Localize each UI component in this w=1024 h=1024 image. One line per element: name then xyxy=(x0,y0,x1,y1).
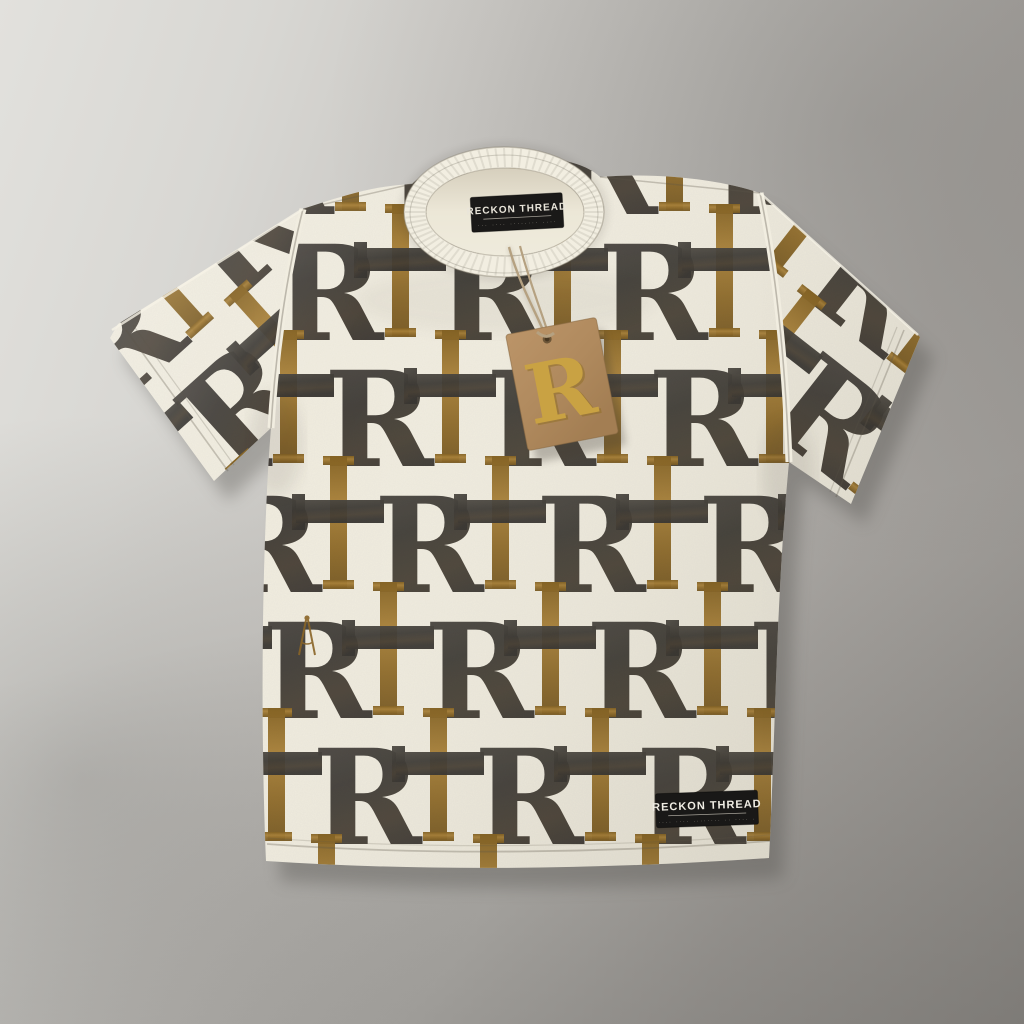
monogram-glyph xyxy=(0,348,94,602)
monogram-glyph xyxy=(0,582,49,750)
monogram-glyph xyxy=(0,746,218,1000)
monogram-glyph xyxy=(0,0,123,120)
monogram-glyph xyxy=(0,547,63,798)
collar-rib-line xyxy=(504,148,505,167)
monogram-glyph xyxy=(917,0,1024,226)
monogram-glyph xyxy=(0,0,212,157)
monogram-glyph xyxy=(926,47,1024,301)
monogram-glyph xyxy=(0,646,190,897)
hem-label: RECKON THREAD ···· ···· ········ ·· ····… xyxy=(652,790,763,828)
monogram-glyph xyxy=(0,517,95,771)
monogram-glyph xyxy=(815,855,1024,1024)
monogram-glyph xyxy=(0,204,61,372)
monogram-glyph xyxy=(611,1015,867,1024)
monogram-glyph xyxy=(84,974,340,1024)
monogram-glyph xyxy=(562,0,818,121)
monogram-glyph xyxy=(578,0,771,120)
monogram-glyph xyxy=(330,0,586,87)
monogram-glyph xyxy=(853,725,1024,976)
monogram-glyph xyxy=(492,960,685,1024)
monogram-glyph xyxy=(0,777,152,1024)
monogram-glyph xyxy=(809,661,1024,915)
monogram-glyph xyxy=(766,834,959,1002)
monogram-glyph xyxy=(927,216,1024,470)
monogram-glyph xyxy=(928,384,1024,638)
neck-label: RECKON THREAD ··· ···· ········ ···· xyxy=(466,192,568,232)
monogram-glyph xyxy=(0,907,114,1024)
monogram-glyph xyxy=(805,0,1024,241)
monogram-glyph xyxy=(990,582,1024,750)
monogram-glyph xyxy=(254,0,447,120)
monogram-glyph xyxy=(952,78,1024,246)
flat-lay-photo: R xyxy=(0,0,1024,1024)
monogram-glyph xyxy=(978,960,1024,1024)
monogram-glyph xyxy=(649,885,905,1024)
monogram-glyph xyxy=(0,577,217,831)
monogram-glyph xyxy=(36,0,292,17)
monogram-glyph xyxy=(0,1006,242,1024)
monogram-glyph xyxy=(764,495,1020,746)
monogram-glyph xyxy=(326,926,582,1024)
monogram-glyph xyxy=(0,0,91,97)
monogram-glyph xyxy=(18,582,211,750)
monogram-glyph xyxy=(0,677,24,928)
monogram-glyph xyxy=(0,409,216,663)
monogram-glyph xyxy=(0,26,215,277)
monogram-glyph xyxy=(968,334,1024,585)
monogram-glyph xyxy=(198,0,454,109)
monogram-glyph xyxy=(0,854,97,1024)
monogram-glyph xyxy=(878,708,1024,876)
monogram-glyph xyxy=(78,0,334,217)
photo-backdrop: R xyxy=(0,0,1024,1024)
monogram-glyph xyxy=(0,57,49,308)
monogram-glyph xyxy=(925,0,1024,133)
monogram-glyph xyxy=(24,876,280,1024)
monogram-glyph xyxy=(661,0,917,26)
monogram-glyph xyxy=(0,330,111,498)
monogram-glyph xyxy=(940,456,1024,624)
monogram-glyph xyxy=(568,878,824,1024)
monogram-glyph xyxy=(811,998,1024,1024)
monogram-glyph xyxy=(810,830,1024,1024)
monogram-glyph xyxy=(92,0,285,120)
monogram-glyph xyxy=(0,456,161,624)
monogram-glyph xyxy=(0,686,96,940)
monogram-glyph xyxy=(495,0,751,57)
monogram-glyph xyxy=(740,0,933,120)
monogram-glyph xyxy=(484,915,740,1024)
monogram-glyph xyxy=(816,960,1009,1024)
monogram-glyph xyxy=(1006,204,1024,455)
monogram-glyph xyxy=(1019,694,1024,945)
monogram-glyph xyxy=(0,708,99,876)
monogram-glyph xyxy=(808,493,1024,747)
monogram-glyph xyxy=(152,976,408,1024)
collar-rib-line xyxy=(512,148,513,167)
monogram-glyph xyxy=(0,0,253,148)
monogram-glyph xyxy=(68,708,261,876)
monogram-glyph xyxy=(0,11,92,265)
monogram-glyph xyxy=(777,985,1024,1024)
monogram-glyph xyxy=(0,78,173,246)
monogram-glyph xyxy=(0,78,11,246)
monogram-glyph xyxy=(164,0,420,117)
monogram-glyph xyxy=(682,0,938,12)
monogram-glyph xyxy=(168,960,361,1024)
monogram-glyph xyxy=(690,938,946,1024)
monogram-glyph xyxy=(205,866,461,1024)
monogram-glyph xyxy=(0,417,101,668)
monogram-glyph xyxy=(623,0,879,156)
monogram-glyph xyxy=(683,0,939,181)
monogram-glyph xyxy=(0,187,11,438)
monogram-glyph xyxy=(0,834,149,1002)
monogram-glyph xyxy=(654,960,847,1024)
monogram-glyph xyxy=(943,954,1024,1024)
monogram-glyph xyxy=(416,0,609,120)
monogram-glyph xyxy=(320,0,576,169)
monogram-glyph xyxy=(0,914,219,1024)
monogram-glyph xyxy=(0,0,88,178)
monogram-glyph xyxy=(955,0,1024,96)
monogram-glyph xyxy=(892,594,1024,845)
monogram-glyph xyxy=(0,0,126,48)
monogram-glyph xyxy=(930,464,1024,715)
monogram-glyph xyxy=(77,0,333,48)
monogram-glyph xyxy=(789,0,1024,126)
monogram-glyph xyxy=(330,960,523,1024)
monogram-glyph xyxy=(0,516,228,767)
monogram-glyph xyxy=(440,0,696,60)
monogram-glyph xyxy=(929,553,1024,807)
monogram-glyph xyxy=(930,721,1024,975)
monogram-glyph xyxy=(790,78,983,246)
monogram-glyph xyxy=(804,0,1024,72)
monogram-glyph xyxy=(6,960,199,1024)
monogram-glyph xyxy=(932,890,1024,1024)
monogram-glyph xyxy=(928,834,1024,1002)
monogram-glyph xyxy=(0,180,93,434)
monogram-glyph xyxy=(448,986,704,1024)
monogram-glyph xyxy=(0,960,37,1024)
monogram-glyph xyxy=(902,0,1024,120)
monogram-glyph xyxy=(828,582,1021,750)
monogram-glyph xyxy=(1002,204,1024,372)
monogram-glyph xyxy=(318,946,574,1024)
monogram-glyph xyxy=(981,824,1024,1024)
